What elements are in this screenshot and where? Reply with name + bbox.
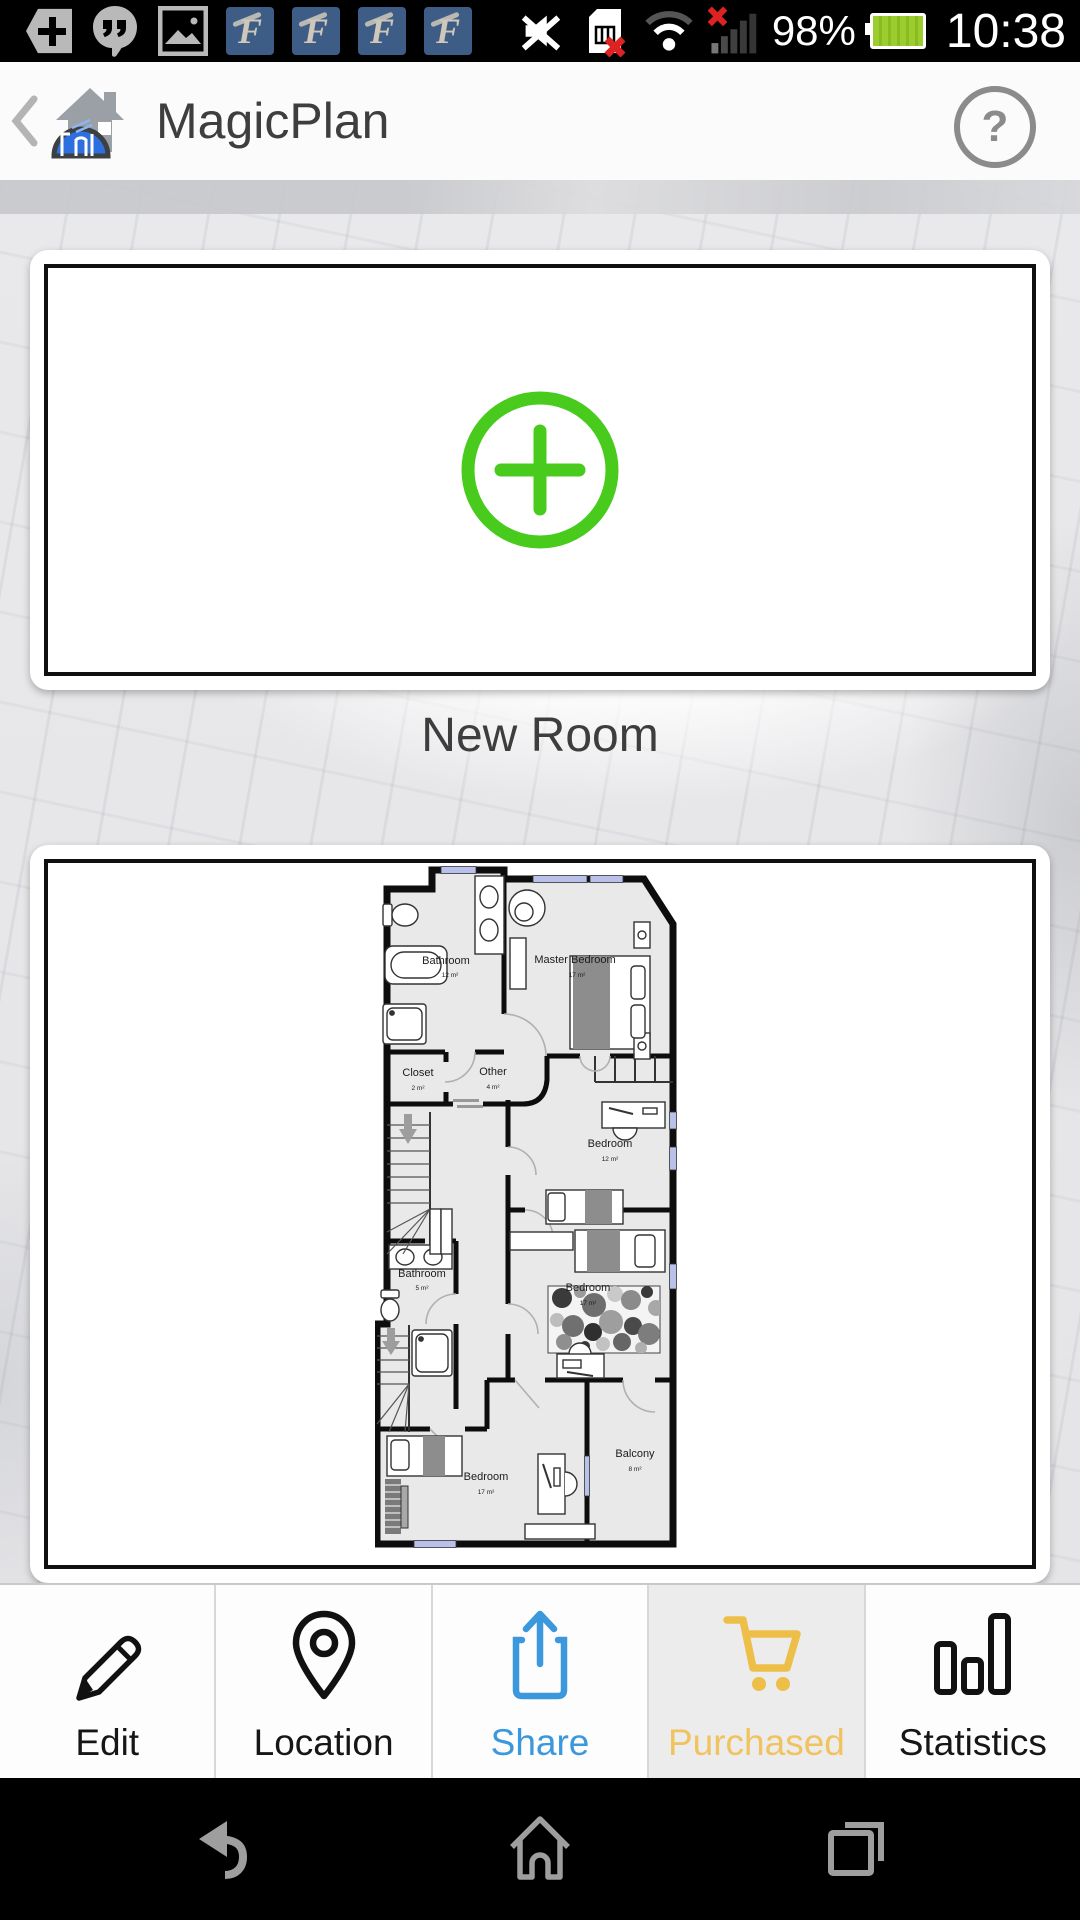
new-room-card[interactable] bbox=[30, 250, 1050, 690]
tab-edit-label: Edit bbox=[75, 1722, 139, 1764]
falcon-letter: F bbox=[304, 10, 328, 52]
plus-badge-icon bbox=[26, 8, 72, 54]
room-label: Other bbox=[479, 1066, 507, 1078]
room-area: 12 m² bbox=[442, 972, 459, 979]
tab-location-label: Location bbox=[254, 1722, 394, 1764]
mute-icon bbox=[516, 6, 566, 56]
battery-percent: 98% bbox=[772, 7, 856, 55]
status-bar: F F F F bbox=[0, 0, 1080, 62]
cart-icon bbox=[701, 1602, 811, 1712]
floor-plan-drawing: Bathroom 12 m² Master Bedroom 17 m² Clos… bbox=[375, 864, 705, 1564]
tab-purchased[interactable]: Purchased bbox=[647, 1585, 863, 1778]
falcon-app-icon: F bbox=[358, 7, 406, 55]
room-label: Balcony bbox=[615, 1448, 655, 1460]
room-area: 5 m² bbox=[416, 1285, 430, 1292]
room-area: 17 m² bbox=[580, 1300, 597, 1307]
android-nav-bar bbox=[0, 1778, 1080, 1920]
room-area: 12 m² bbox=[602, 1156, 619, 1163]
sim-error-icon bbox=[580, 6, 630, 56]
falcon-letter: F bbox=[238, 10, 262, 52]
magicplan-app-icon bbox=[46, 78, 132, 164]
falcon-letter: F bbox=[370, 10, 394, 52]
room-area: 4 m² bbox=[487, 1084, 501, 1091]
falcon-letter: F bbox=[436, 10, 460, 52]
room-area: 17 m² bbox=[478, 1489, 495, 1496]
nav-home-icon[interactable] bbox=[495, 1804, 585, 1894]
clock: 10:38 bbox=[940, 4, 1066, 59]
nav-back-icon[interactable] bbox=[180, 1804, 270, 1894]
room-label: Bedroom bbox=[464, 1471, 509, 1483]
signal-error-icon bbox=[708, 6, 758, 56]
back-chevron-icon[interactable] bbox=[8, 91, 42, 151]
falcon-app-icon: F bbox=[424, 7, 472, 55]
help-button[interactable]: ? bbox=[954, 86, 1036, 168]
blueprint-background-band bbox=[0, 180, 1080, 214]
room-label: Closet bbox=[402, 1067, 433, 1079]
system-icons: 98% 10:38 bbox=[516, 4, 1080, 59]
falcon-app-icon: F bbox=[226, 7, 274, 55]
nav-recents-icon[interactable] bbox=[810, 1804, 900, 1894]
help-question-mark: ? bbox=[982, 102, 1009, 152]
room-area: 17 m² bbox=[569, 972, 586, 979]
room-label: Master Bedroom bbox=[534, 954, 615, 966]
tab-purchased-label: Purchased bbox=[668, 1722, 845, 1764]
gallery-icon bbox=[158, 6, 208, 56]
room-area: 8 m² bbox=[629, 1466, 643, 1473]
tab-share[interactable]: Share bbox=[431, 1585, 647, 1778]
bar-chart-icon bbox=[923, 1602, 1023, 1712]
tab-statistics-label: Statistics bbox=[899, 1722, 1047, 1764]
location-pin-icon bbox=[274, 1602, 374, 1712]
battery-icon bbox=[870, 13, 926, 49]
plus-icon[interactable] bbox=[455, 385, 625, 555]
tab-share-label: Share bbox=[491, 1722, 590, 1764]
share-icon bbox=[490, 1602, 590, 1712]
floor-plan-card[interactable]: Bathroom 12 m² Master Bedroom 17 m² Clos… bbox=[30, 845, 1050, 1583]
room-label: Bedroom bbox=[566, 1282, 611, 1294]
room-label: Bathroom bbox=[398, 1268, 446, 1280]
room-label: Bathroom bbox=[422, 955, 470, 967]
tab-location[interactable]: Location bbox=[214, 1585, 430, 1778]
room-label: Bedroom bbox=[588, 1138, 633, 1150]
bottom-tab-bar: Edit Location Share Purchased Statistics bbox=[0, 1583, 1080, 1778]
notification-icons: F F F F bbox=[0, 6, 472, 56]
app-header: MagicPlan ? bbox=[0, 62, 1080, 180]
tab-statistics[interactable]: Statistics bbox=[864, 1585, 1080, 1778]
pencil-icon bbox=[57, 1602, 157, 1712]
new-room-label: New Room bbox=[0, 708, 1080, 763]
page-title: MagicPlan bbox=[156, 92, 389, 150]
falcon-app-icon: F bbox=[292, 7, 340, 55]
tab-edit[interactable]: Edit bbox=[0, 1585, 214, 1778]
wifi-icon bbox=[644, 6, 694, 56]
room-area: 2 m² bbox=[412, 1085, 426, 1092]
hangouts-icon bbox=[90, 6, 140, 56]
